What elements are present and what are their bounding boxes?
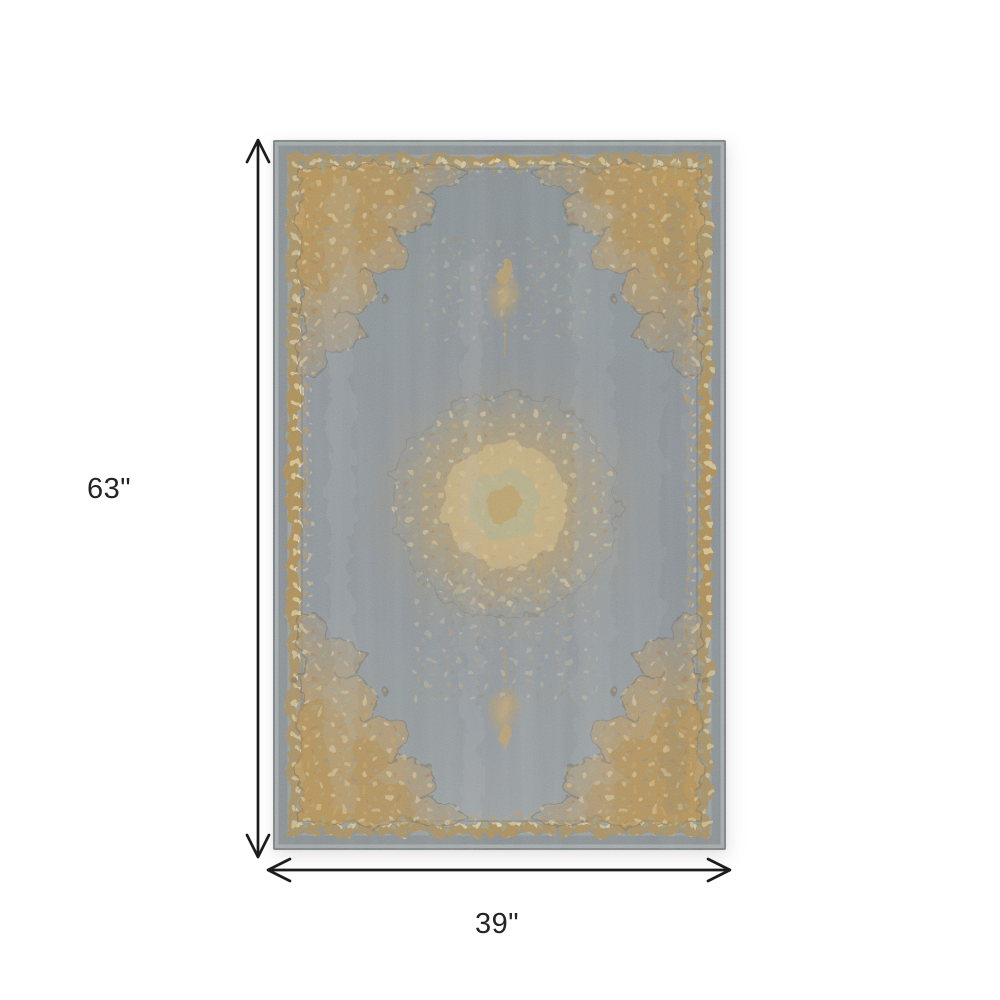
rug-artwork bbox=[273, 140, 726, 850]
rug-product-image bbox=[273, 140, 726, 850]
distress-texture bbox=[273, 140, 726, 850]
height-label: 63" bbox=[54, 473, 164, 506]
product-dimension-diagram: 63" 39" bbox=[0, 0, 1000, 1000]
height-dimension-arrow bbox=[244, 132, 272, 868]
width-dimension-arrow bbox=[258, 856, 742, 884]
width-label: 39" bbox=[442, 908, 552, 941]
